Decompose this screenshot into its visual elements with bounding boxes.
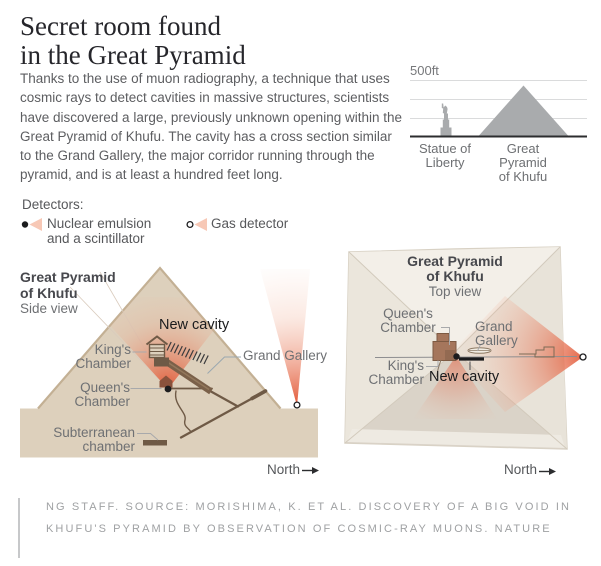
top-north-label: North (504, 462, 537, 477)
subterranean-chamber-shape (143, 440, 167, 446)
nuclear-emulsion-detector-dot (165, 386, 172, 393)
beam-wedge-icon (30, 218, 43, 231)
pyramid-label: Great Pyramid of Khufu (488, 142, 558, 184)
axis-top-label: 500ft (410, 63, 439, 78)
legend-item-gas-detector: Gas detector (211, 216, 288, 231)
side-subterranean-label: Subterranean chamber (53, 426, 135, 453)
north-arrow-icon (539, 468, 556, 475)
source-credit: NG STAFF. SOURCE: MORISHIMA, K. ET AL. D… (46, 496, 580, 540)
nuclear-emulsion-detector-dot-top (453, 353, 459, 359)
top-queens-chamber-label: Queen's Chamber (371, 307, 445, 334)
muon-beam-from-gas-detector (260, 269, 310, 406)
top-kings-chamber-label: King's Chamber (352, 359, 424, 386)
gas-detector-dot (294, 402, 300, 408)
top-view-subtitle: Top view (405, 284, 505, 299)
legend-title: Detectors: (22, 197, 84, 212)
top-grand-gallery-label: Grand Gallery (475, 320, 518, 347)
side-view-subtitle: Side view (20, 301, 78, 316)
gas-detector-icon (187, 222, 193, 228)
intro-paragraph: Thanks to the use of muon radiography, a… (20, 69, 406, 185)
nuclear-emulsion-detector-icon (22, 221, 28, 227)
scale-chart (410, 81, 587, 137)
source-rule (18, 498, 20, 558)
side-grand-gallery-label: Grand Gallery (243, 349, 327, 363)
side-kings-chamber-label: King's Chamber (58, 343, 131, 370)
infographic: Secret room found in the Great Pyramid T… (0, 0, 601, 566)
beam-wedge-icon (195, 218, 208, 231)
side-queens-chamber-label: Queen's Chamber (56, 381, 130, 408)
side-new-cavity-label: New cavity (159, 317, 229, 333)
legend-item-nuclear-emulsion: Nuclear emulsion and a scintillator (47, 216, 151, 246)
side-north-label: North (267, 462, 300, 477)
page-title: Secret room found in the Great Pyramid (20, 12, 246, 70)
pyramid-silhouette (479, 86, 568, 136)
statue-of-liberty-silhouette (441, 104, 452, 136)
kings-chamber-shape (154, 358, 169, 367)
top-view-title: Great Pyramid of Khufu (405, 254, 505, 283)
side-view-title: Great Pyramid of Khufu (20, 269, 116, 301)
north-arrow-icon (302, 467, 319, 474)
top-new-cavity-label: New cavity (429, 369, 499, 385)
statue-label: Statue of Liberty (410, 142, 480, 170)
gas-detector-dot-top (580, 354, 586, 360)
